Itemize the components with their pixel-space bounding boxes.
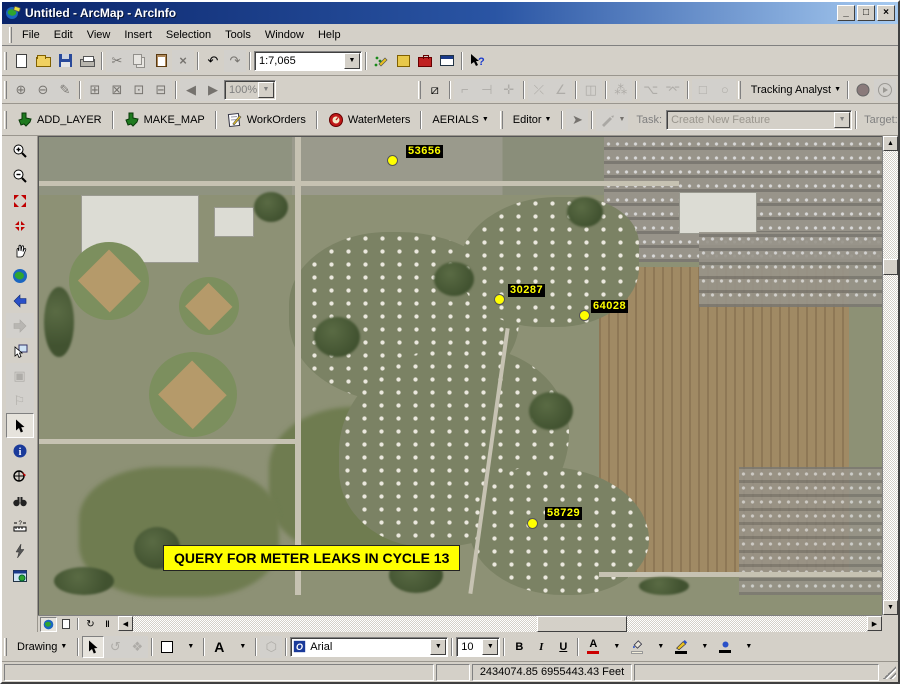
fill-color-button[interactable] — [626, 636, 648, 658]
menu-selection[interactable]: Selection — [159, 27, 218, 43]
identify-info-icon: i — [12, 443, 28, 459]
fixed-zoom-icon: ⊡ — [134, 82, 145, 98]
status-message-panel — [4, 664, 434, 681]
command-window-icon — [440, 55, 454, 66]
print-button[interactable] — [76, 50, 98, 72]
sketch-tool-button[interactable]: ▼ — [596, 109, 628, 131]
aerials-label: AERIALS — [432, 114, 478, 126]
data-view-tab[interactable] — [40, 617, 57, 632]
playback-manager-button[interactable] — [874, 79, 896, 101]
draft-mode-icon: ⊟ — [156, 82, 167, 98]
line-color-dropdown[interactable]: ▼ — [692, 636, 714, 658]
new-text-tool[interactable]: A — [208, 636, 230, 658]
diagonal-line-icon: ⧄ — [431, 82, 439, 98]
marker-dot-icon — [719, 640, 732, 653]
save-button[interactable] — [54, 50, 76, 72]
back-arrow-icon: ◀ — [186, 82, 196, 98]
horizontal-scroll-thumb[interactable] — [537, 616, 627, 632]
task-label: Task: — [636, 114, 662, 126]
aerial-small-building — [214, 207, 254, 237]
layout-zoom-in-button[interactable]: ⊕ — [10, 79, 32, 101]
previous-extent-button[interactable]: ◀ — [180, 79, 202, 101]
copy-parallel-button[interactable]: ⌥ — [640, 79, 662, 101]
redo-button[interactable]: ↷ — [224, 50, 246, 72]
standard-toolbar-row: ✂ × ↶ ↷ 1:7,065 ▼ — [2, 46, 898, 76]
aerial-trees — [529, 392, 573, 430]
fixed-zoom-in-page-button[interactable]: ⊡ — [128, 79, 150, 101]
shape-dropdown-button[interactable]: ▼ — [178, 636, 200, 658]
toolbar-grip — [4, 638, 7, 656]
chevron-down-icon: ▼ — [60, 643, 67, 650]
separator — [591, 111, 593, 129]
square-tool-button[interactable]: □ — [692, 79, 714, 101]
titlebar[interactable]: Untitled - ArcMap - ArcInfo _ □ × — [2, 2, 898, 24]
texas-icon — [124, 112, 140, 128]
clear-selection-tool[interactable]: ▣ — [6, 363, 34, 388]
new-rectangle-tool[interactable] — [156, 636, 178, 658]
copy-button[interactable] — [128, 50, 150, 72]
aerial-trees — [44, 287, 74, 357]
menu-help[interactable]: Help — [311, 27, 348, 43]
pointer-with-map-icon — [12, 343, 28, 359]
scissors-icon: ✂ — [112, 53, 123, 69]
whole-page-icon: ⊞ — [90, 82, 101, 98]
separator — [847, 81, 849, 99]
separator — [365, 52, 367, 70]
pause-icon: ‖ — [105, 619, 109, 629]
rotate-element-button[interactable]: ↺ — [104, 636, 126, 658]
zoom-in-icon: ⊕ — [16, 82, 27, 98]
horizontal-scroll-track[interactable] — [133, 616, 867, 632]
editor-toolbar: Editor ▼ ➤ ▼ Task: Create New Feature ▼ … — [498, 104, 900, 135]
svg-text:?: ? — [478, 56, 485, 68]
tracking-analyst-menu[interactable]: Tracking Analyst ▼ — [744, 79, 844, 101]
drawing-toolbar: Drawing ▼ ↺ ❖ ▼ A ▼ ⬡ O Arial ▼ — [2, 632, 760, 661]
aerial-ballfield-2 — [149, 352, 237, 437]
scroll-right-arrow[interactable]: ▶ — [867, 616, 882, 631]
chevron-down-icon: ▼ — [701, 643, 708, 650]
globe-icon — [12, 268, 28, 284]
chevron-down-icon[interactable]: ▼ — [258, 82, 274, 98]
edit-vertices-button[interactable]: ⬡ — [260, 636, 282, 658]
vertex-edit-icon: ⌐ — [461, 82, 469, 98]
pencil-icon — [599, 112, 615, 128]
separator — [855, 111, 857, 129]
chevron-down-icon: ▼ — [239, 643, 246, 650]
hand-icon — [12, 243, 28, 259]
layout-zoom-out-button[interactable]: ⊖ — [32, 79, 54, 101]
copy-icon — [133, 54, 142, 65]
chevron-down-icon[interactable]: ▼ — [482, 639, 498, 655]
italic-button[interactable]: I — [530, 636, 552, 658]
separator — [449, 81, 451, 99]
layout-pan-button[interactable]: ✎ — [54, 79, 76, 101]
meter-point-dot[interactable] — [387, 155, 398, 166]
zoom-whole-page-button[interactable]: ⊞ — [84, 79, 106, 101]
command-line-button[interactable] — [436, 50, 458, 72]
chevron-down-icon: ▼ — [545, 116, 552, 123]
meter-point-label[interactable]: 30287 — [508, 284, 545, 297]
paste-clipboard-icon — [156, 54, 167, 67]
drawing-toolbar-row: Drawing ▼ ↺ ❖ ▼ A ▼ ⬡ O Arial ▼ — [2, 632, 898, 662]
underline-label: U — [559, 641, 567, 653]
custom-macro-toolbar: ADD_LAYER MAKE_MAP WorkOrders — [2, 104, 498, 135]
pan-tool[interactable] — [6, 238, 34, 263]
task-value: Create New Feature — [667, 114, 833, 126]
separator — [255, 638, 257, 656]
meter-point-label[interactable]: 58729 — [545, 507, 582, 520]
aerial-trees — [639, 577, 689, 595]
query-banner: QUERY FOR METER LEAKS IN CYCLE 13 — [163, 545, 460, 571]
aerials-menu-button[interactable]: AERIALS ▼ — [425, 108, 495, 132]
back-blue-arrow-icon — [12, 293, 28, 309]
separator — [249, 52, 251, 70]
separator — [101, 52, 103, 70]
magnifier-plus-icon — [12, 143, 28, 159]
whats-this-button[interactable]: ? — [466, 50, 488, 72]
arccatalog-icon — [397, 55, 410, 67]
fill-color-dropdown[interactable]: ▼ — [648, 636, 670, 658]
separator — [523, 81, 525, 99]
arrows-inward-icon — [12, 193, 28, 209]
rotate-tool-button[interactable]: ∠ — [550, 79, 572, 101]
chevron-down-icon[interactable]: ▼ — [834, 112, 850, 128]
custom-toolbar-row: ADD_LAYER MAKE_MAP WorkOrders — [2, 104, 898, 136]
menu-tools[interactable]: Tools — [218, 27, 258, 43]
toolbar-grip — [738, 81, 741, 99]
scroll-left-arrow[interactable]: ◀ — [118, 616, 133, 631]
italic-label: I — [539, 641, 543, 653]
tracking-symbol-button[interactable] — [852, 79, 874, 101]
segment-icon: ⊣ — [481, 82, 492, 98]
water-meters-label: WaterMeters — [348, 114, 411, 126]
tools-toolbar: ▣ ⚐ i ? — [2, 136, 38, 632]
tracking-analyst-label: Tracking Analyst — [751, 84, 831, 96]
bold-label: B — [515, 641, 523, 653]
map-scale-value: 1:7,065 — [255, 55, 343, 67]
chevron-down-icon: ▼ — [482, 116, 489, 123]
aerial-trees — [54, 567, 114, 595]
split-tool-button[interactable]: ⤫ — [528, 79, 550, 101]
binoculars-icon — [12, 493, 28, 509]
aerial-ballfield-1 — [69, 242, 149, 320]
crosshair-icon: ✛ — [503, 82, 514, 98]
measure-tool[interactable]: ? — [6, 513, 34, 538]
attributes-window-icon: ◫ — [585, 82, 597, 98]
separator — [605, 81, 607, 99]
magnifier-window-tool[interactable] — [6, 563, 34, 588]
font-color-button[interactable]: A — [582, 636, 604, 658]
separator — [635, 81, 637, 99]
black-pointer-icon — [12, 418, 28, 434]
merge-button[interactable]: ⌤ — [662, 79, 684, 101]
text-dropdown-button[interactable]: ▼ — [230, 636, 252, 658]
layout-page-icon — [62, 619, 70, 629]
scroll-down-arrow[interactable]: ▼ — [883, 600, 898, 615]
edit-tool-button[interactable]: ➤ — [566, 109, 588, 131]
marker-color-dropdown[interactable]: ▼ — [736, 636, 758, 658]
marker-color-button[interactable] — [714, 636, 736, 658]
advanced-editing-toolbar: ⧄ ⌐ ⊣ ✛ ⤫ ∠ ◫ ⁂ ⌥ ⌤ □ ○ Tracking Analyst… — [416, 76, 898, 103]
menu-file[interactable]: File — [15, 27, 47, 43]
separator — [203, 638, 205, 656]
separator — [112, 111, 114, 129]
merge-icon: ⌤ — [665, 82, 680, 98]
font-combo[interactable]: O Arial ▼ — [290, 637, 448, 657]
editor-toolbar-toggle-button[interactable] — [370, 50, 392, 72]
minimize-button[interactable]: _ — [837, 5, 855, 21]
undo-button[interactable]: ↶ — [202, 50, 224, 72]
select-graphics-tool[interactable]: ⚐ — [6, 388, 34, 413]
work-orders-button[interactable]: WorkOrders — [220, 108, 313, 132]
zoom-100-button[interactable]: ⊠ — [106, 79, 128, 101]
menu-grip — [9, 27, 12, 43]
save-floppy-icon — [59, 54, 72, 67]
close-button[interactable]: × — [877, 5, 895, 21]
separator — [197, 52, 199, 70]
graphic-window-icon: ❖ — [131, 639, 143, 655]
arctoolbox-button[interactable] — [414, 50, 436, 72]
font-size-combo[interactable]: 10 ▼ — [456, 637, 500, 657]
open-button[interactable] — [32, 50, 54, 72]
square-icon: □ — [699, 82, 707, 98]
pan-hand-icon: ✎ — [60, 82, 71, 98]
arctoolbox-icon — [418, 57, 432, 67]
circle-tool-button[interactable]: ○ — [714, 79, 736, 101]
meter-point-dot[interactable] — [527, 518, 538, 529]
arcmap-window: Untitled - ArcMap - ArcInfo _ □ × File E… — [0, 0, 900, 684]
identify-tool[interactable]: i — [6, 438, 34, 463]
lightning-icon — [12, 543, 28, 559]
secondary-toolbar-row: ⊕ ⊖ ✎ ⊞ ⊠ ⊡ ⊟ ◀ ▶ 100% ▼ ⧄ ⌐ ⊣ ✛ ⤫ ∠ — [2, 76, 898, 104]
map-window-icon — [12, 568, 28, 584]
cut-button[interactable]: ✂ — [106, 50, 128, 72]
paste-button[interactable] — [150, 50, 172, 72]
pause-drawing-button[interactable]: ‖ — [99, 617, 116, 632]
arccatalog-button[interactable] — [392, 50, 414, 72]
new-document-icon — [16, 54, 27, 68]
edit-sketch-icon — [373, 53, 389, 69]
svg-text:i: i — [18, 447, 21, 458]
font-color-dropdown[interactable]: ▼ — [604, 636, 626, 658]
target-label: Target: — [864, 114, 898, 126]
black-pointer-icon — [85, 639, 101, 655]
rectangle-icon — [161, 641, 173, 653]
parallel-lines-icon: ⌥ — [643, 82, 658, 98]
separator — [316, 111, 318, 129]
select-elements-button[interactable] — [82, 636, 104, 658]
separator — [687, 81, 689, 99]
menu-view[interactable]: View — [80, 27, 118, 43]
flag-icon: ⚐ — [14, 393, 26, 409]
full-extent-tool[interactable] — [6, 263, 34, 288]
delete-button[interactable]: × — [172, 50, 194, 72]
chevron-down-icon: ▼ — [613, 643, 620, 650]
vertical-scroll-thumb[interactable] — [883, 259, 898, 275]
chevron-down-icon: ▼ — [618, 116, 625, 123]
filled-circle-icon — [855, 82, 871, 98]
aerial-trees — [567, 197, 603, 227]
select-features-tool[interactable] — [6, 338, 34, 363]
vertical-scroll-track[interactable] — [883, 151, 898, 600]
select-elements-tool[interactable] — [6, 413, 34, 438]
find-tool[interactable] — [6, 488, 34, 513]
page-zoom-value: 100% — [225, 84, 257, 96]
hyperlink-tool[interactable] — [6, 538, 34, 563]
menu-edit[interactable]: Edit — [47, 27, 80, 43]
main-area: ▣ ⚐ i ? — [2, 136, 898, 632]
polygon-edit-icon: ⬡ — [266, 639, 277, 655]
chevron-down-icon[interactable]: ▼ — [430, 639, 446, 655]
separator — [451, 638, 453, 656]
drawing-menu-label: Drawing — [17, 641, 57, 653]
go-forward-extent-tool[interactable] — [6, 313, 34, 338]
layout-view-tab[interactable] — [57, 617, 74, 632]
status-small-panel — [436, 664, 470, 681]
make-map-button[interactable]: MAKE_MAP — [117, 108, 212, 132]
attributes-button[interactable]: ◫ — [580, 79, 602, 101]
add-layer-button[interactable]: ADD_LAYER — [10, 108, 109, 132]
chevron-down-icon: ▼ — [834, 86, 841, 93]
menu-insert[interactable]: Insert — [117, 27, 159, 43]
sketch-properties-button[interactable]: ⧄ — [424, 79, 446, 101]
buffer-tool-button[interactable]: ⁂ — [610, 79, 632, 101]
zoom-out-tool[interactable] — [6, 163, 34, 188]
chevron-down-icon: ▼ — [657, 643, 664, 650]
fixed-zoom-out-tool[interactable] — [6, 213, 34, 238]
rotate-icon: ↺ — [110, 639, 121, 655]
editor-menu-button[interactable]: Editor ▼ — [506, 108, 559, 132]
toolbar-grip — [4, 81, 7, 99]
add-layer-label: ADD_LAYER — [37, 114, 102, 126]
separator — [285, 638, 287, 656]
clear-selection-icon: ▣ — [13, 368, 25, 384]
separator — [151, 638, 153, 656]
line-pen-icon — [675, 639, 688, 654]
arcmap-app-icon — [5, 5, 21, 21]
meter-point-dot[interactable] — [494, 294, 505, 305]
toolbar-grip — [4, 111, 7, 129]
toolbar-grip — [418, 81, 421, 99]
editor-label: Editor — [513, 114, 542, 126]
toolbar-grip — [4, 52, 7, 70]
chevron-down-icon: ▼ — [187, 643, 194, 650]
separator — [79, 81, 81, 99]
redo-arrow-icon: ↷ — [230, 53, 241, 69]
text-a-icon: A — [214, 639, 224, 655]
toggle-draft-button[interactable]: ⊟ — [150, 79, 172, 101]
font-size-value: 10 — [457, 641, 481, 653]
svg-text:?: ? — [18, 521, 22, 527]
toolbar-grip — [500, 111, 503, 129]
drawing-menu-button[interactable]: Drawing ▼ — [10, 635, 74, 659]
meter-point-label[interactable]: 64028 — [591, 300, 628, 313]
forward-gray-arrow-icon — [12, 318, 28, 334]
edit-arrow-icon: ➤ — [572, 112, 583, 128]
menu-bar: File Edit View Insert Selection Tools Wi… — [2, 24, 898, 46]
map-view[interactable]: 53656 30287 64028 58729 QUERY FOR METER … — [38, 136, 882, 615]
meter-point-label[interactable]: 53656 — [406, 145, 443, 158]
separator — [175, 81, 177, 99]
window-title: Untitled - ArcMap - ArcInfo — [25, 6, 835, 20]
aerial-warehouse — [679, 192, 757, 234]
extend-trim-button[interactable]: ⊣ — [476, 79, 498, 101]
next-extent-button[interactable]: ▶ — [202, 79, 224, 101]
map-vertical-scrollbar[interactable]: ▲ ▼ — [882, 136, 898, 615]
aerial-road-horizontal-bottom — [599, 572, 882, 577]
separator — [77, 618, 79, 630]
open-folder-icon — [36, 57, 51, 67]
status-right-panel — [634, 664, 879, 681]
refresh-view-button[interactable]: ↻ — [82, 617, 99, 632]
go-back-extent-tool[interactable] — [6, 288, 34, 313]
water-meter-gauge-icon — [328, 112, 344, 128]
wheel-magnifier-icon — [12, 468, 28, 484]
aerial-trees — [434, 262, 474, 296]
modify-sketch-button[interactable]: ⌐ — [454, 79, 476, 101]
forward-arrow-icon: ▶ — [208, 82, 218, 98]
separator — [577, 638, 579, 656]
aerial-trees — [254, 192, 288, 222]
meter-point-dot[interactable] — [579, 310, 590, 321]
aerial-ballfield-3 — [179, 277, 239, 335]
line-color-button[interactable] — [670, 636, 692, 658]
water-meters-button[interactable]: WaterMeters — [321, 108, 418, 132]
new-map-button[interactable] — [10, 50, 32, 72]
notepad-pencil-icon — [227, 112, 243, 128]
zoom-100-icon: ⊠ — [112, 82, 123, 98]
zoom-to-graphic-button[interactable]: ❖ — [126, 636, 148, 658]
angle-icon: ∠ — [555, 82, 567, 98]
chevron-down-icon[interactable]: ▼ — [344, 53, 360, 69]
map-frame: 53656 30287 64028 58729 QUERY FOR METER … — [38, 136, 898, 632]
zoom-in-tool[interactable] — [6, 138, 34, 163]
separator — [561, 111, 563, 129]
menu-window[interactable]: Window — [258, 27, 311, 43]
sparkle-icon: ⁂ — [614, 82, 627, 98]
texas-icon — [17, 112, 33, 128]
window-resize-grip[interactable] — [883, 666, 896, 679]
fixed-zoom-in-tool[interactable] — [6, 188, 34, 213]
font-value: Arial — [306, 641, 429, 653]
aerial-road-horizontal-top — [39, 181, 679, 186]
chevron-down-icon: ▼ — [745, 643, 752, 650]
fill-bucket-icon — [631, 639, 644, 654]
magnifier-minus-icon — [12, 168, 28, 184]
page-zoom-combo[interactable]: 100% ▼ — [224, 80, 276, 100]
task-combo[interactable]: Create New Feature ▼ — [666, 110, 852, 130]
play-circle-icon — [877, 82, 893, 98]
zoom-to-selected-tool[interactable] — [6, 463, 34, 488]
refresh-icon: ↻ — [86, 619, 94, 630]
underline-button[interactable]: U — [552, 636, 574, 658]
svg-text:O: O — [296, 642, 303, 652]
maximize-button[interactable]: □ — [857, 5, 875, 21]
print-icon — [80, 59, 95, 67]
map-scale-combo[interactable]: 1:7,065 ▼ — [254, 51, 362, 71]
bold-button[interactable]: B — [508, 636, 530, 658]
coordinate-readout: 2434074.85 6955443.43 Feet — [472, 664, 632, 681]
measure-ruler-icon: ? — [12, 518, 28, 534]
work-orders-label: WorkOrders — [247, 114, 306, 126]
font-color-icon: A — [587, 639, 599, 654]
aerial-trees — [314, 317, 360, 357]
map-bottom-strip: ↻ ‖ ◀ ▶ — [38, 615, 882, 632]
intersect-button[interactable]: ✛ — [498, 79, 520, 101]
help-pointer-icon: ? — [469, 53, 485, 69]
aerial-road-horizontal-mid — [39, 439, 297, 444]
scroll-up-arrow[interactable]: ▲ — [883, 136, 898, 151]
